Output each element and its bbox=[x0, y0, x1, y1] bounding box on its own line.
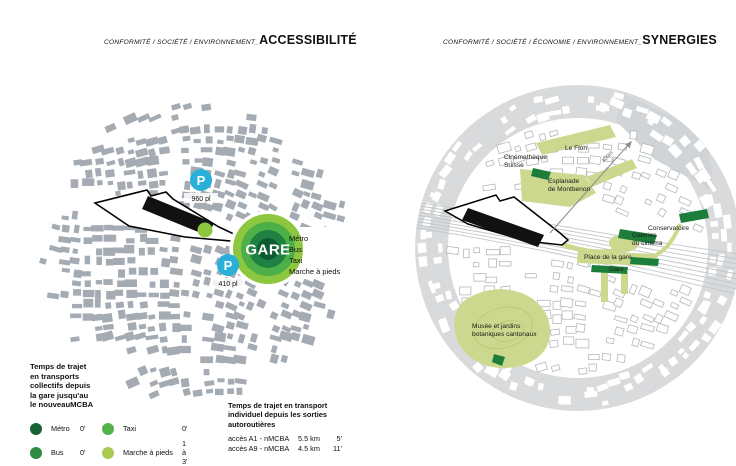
legend-dot-icon bbox=[102, 447, 114, 459]
right-title-main: SYNERGIES bbox=[642, 33, 717, 47]
legend-title-line: collectifs depuis bbox=[30, 381, 240, 391]
right-title-criteria: CONFORMITÉ / SOCIÉTÉ / ÉCONOMIE / ENVIRO… bbox=[443, 39, 642, 46]
transport-mode: Taxi bbox=[289, 256, 303, 265]
map-label-conservatoire: Conservatoire bbox=[648, 225, 689, 232]
access-time: 5' bbox=[328, 434, 342, 444]
legend-title-line: Temps de trajet en transport bbox=[228, 401, 408, 410]
legend-title-line: la gare jusqu'au bbox=[30, 391, 240, 401]
map-label-le-flon: Le Flon bbox=[565, 145, 587, 152]
legend-item: Métro0' bbox=[30, 422, 70, 435]
legend-item-label: Métro bbox=[51, 424, 70, 433]
legend-item-value: 0' bbox=[80, 424, 85, 433]
legend-item-value: 0' bbox=[182, 424, 187, 433]
access-row: accès A9 - nMCBA4.5 km11' bbox=[228, 444, 408, 454]
parking-symbol: P bbox=[197, 173, 206, 188]
poster: CONFORMITÉ / SOCIÉTÉ / ENVIRONNEMENT_ACC… bbox=[0, 0, 736, 460]
legend-title-line: autoroutières bbox=[228, 420, 408, 429]
legend-title-line: le nouveauMCBA bbox=[30, 400, 240, 410]
map-label-place-gare: Place de la gare bbox=[584, 254, 632, 261]
parking-capacity: 410 pl bbox=[218, 281, 238, 288]
left-title-main: ACCESSIBILITÉ bbox=[259, 33, 357, 47]
access-distance: 4.5 km bbox=[298, 444, 328, 454]
legend-item-label: Bus bbox=[51, 448, 64, 457]
legend-dot-icon bbox=[30, 447, 42, 459]
access-label: accès A1 - nMCBA bbox=[228, 434, 298, 444]
legend-title-line: en transports bbox=[30, 372, 240, 382]
right-panel-title: CONFORMITÉ / SOCIÉTÉ / ÉCONOMIE / ENVIRO… bbox=[443, 31, 717, 49]
legend-item: Taxi0' bbox=[102, 422, 136, 435]
parking-marker-bottom: P 410 pl bbox=[217, 254, 239, 288]
legend-item: Bus0' bbox=[30, 446, 64, 459]
access-time: 11' bbox=[328, 444, 342, 454]
map-label-gare: Gare bbox=[609, 266, 624, 273]
access-row: accès A1 - nMCBA5.5 km5' bbox=[228, 434, 408, 444]
legend-item-value: 1 à 3' bbox=[182, 439, 187, 466]
synergies-map: Le FlonCinémathèqueSuisseEsplanadede Mon… bbox=[408, 83, 736, 413]
mcba-entrance-dot bbox=[198, 223, 213, 238]
legend-title-line: individuel depuis les sorties bbox=[228, 410, 408, 419]
legend-item-label: Marche à pieds bbox=[123, 448, 173, 457]
legend-item-label: Taxi bbox=[123, 424, 136, 433]
transport-mode: Bus bbox=[289, 245, 302, 254]
access-distance: 5.5 km bbox=[298, 434, 328, 444]
transport-mode: Métro bbox=[289, 234, 308, 243]
left-title-criteria: CONFORMITÉ / SOCIÉTÉ / ENVIRONNEMENT_ bbox=[104, 39, 259, 46]
gare-label: GARE bbox=[245, 242, 290, 259]
parking-capacity: 960 pl bbox=[191, 196, 211, 203]
legend-individual-title: Temps de trajet en transportindividuel d… bbox=[228, 401, 408, 429]
parking-marker-top: P 960 pl bbox=[190, 169, 212, 203]
access-label: accès A9 - nMCBA bbox=[228, 444, 298, 454]
legend-collective-title: Temps de trajeten transportscollectifs d… bbox=[30, 362, 240, 410]
left-panel-title: CONFORMITÉ / SOCIÉTÉ / ENVIRONNEMENT_ACC… bbox=[104, 31, 357, 49]
legend-dot-icon bbox=[102, 423, 114, 435]
transport-mode: Marche à pieds bbox=[289, 267, 341, 276]
legend-item-value: 0' bbox=[80, 448, 85, 457]
legend-item: Marche à pieds1 à 3' bbox=[102, 446, 173, 459]
legend-title-line: Temps de trajet bbox=[30, 362, 240, 372]
legend-collective-transport: Temps de trajeten transportscollectifs d… bbox=[30, 362, 240, 457]
legend-dot-icon bbox=[30, 423, 42, 435]
legend-individual-transport: Temps de trajet en transportindividuel d… bbox=[228, 401, 408, 454]
parking-symbol: P bbox=[224, 258, 233, 273]
